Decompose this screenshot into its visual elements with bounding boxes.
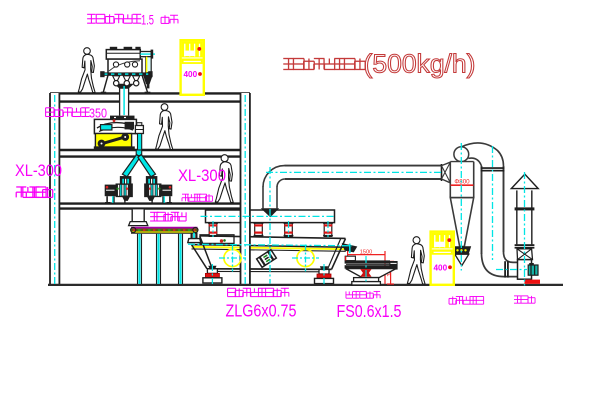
svg-text:1500: 1500 <box>360 249 372 255</box>
svg-text:1.5: 1.5 <box>141 13 154 28</box>
svg-text:XL-300: XL-300 <box>15 161 62 180</box>
svg-text:FS0.6x1.5: FS0.6x1.5 <box>337 301 402 321</box>
svg-text:(500kg/h): (500kg/h) <box>364 49 476 79</box>
svg-text:350: 350 <box>89 105 107 120</box>
svg-text:400: 400 <box>184 70 198 79</box>
svg-text:400: 400 <box>434 263 448 272</box>
svg-text:ZLG6x0.75: ZLG6x0.75 <box>226 301 297 321</box>
svg-text:XL-300: XL-300 <box>178 166 226 185</box>
